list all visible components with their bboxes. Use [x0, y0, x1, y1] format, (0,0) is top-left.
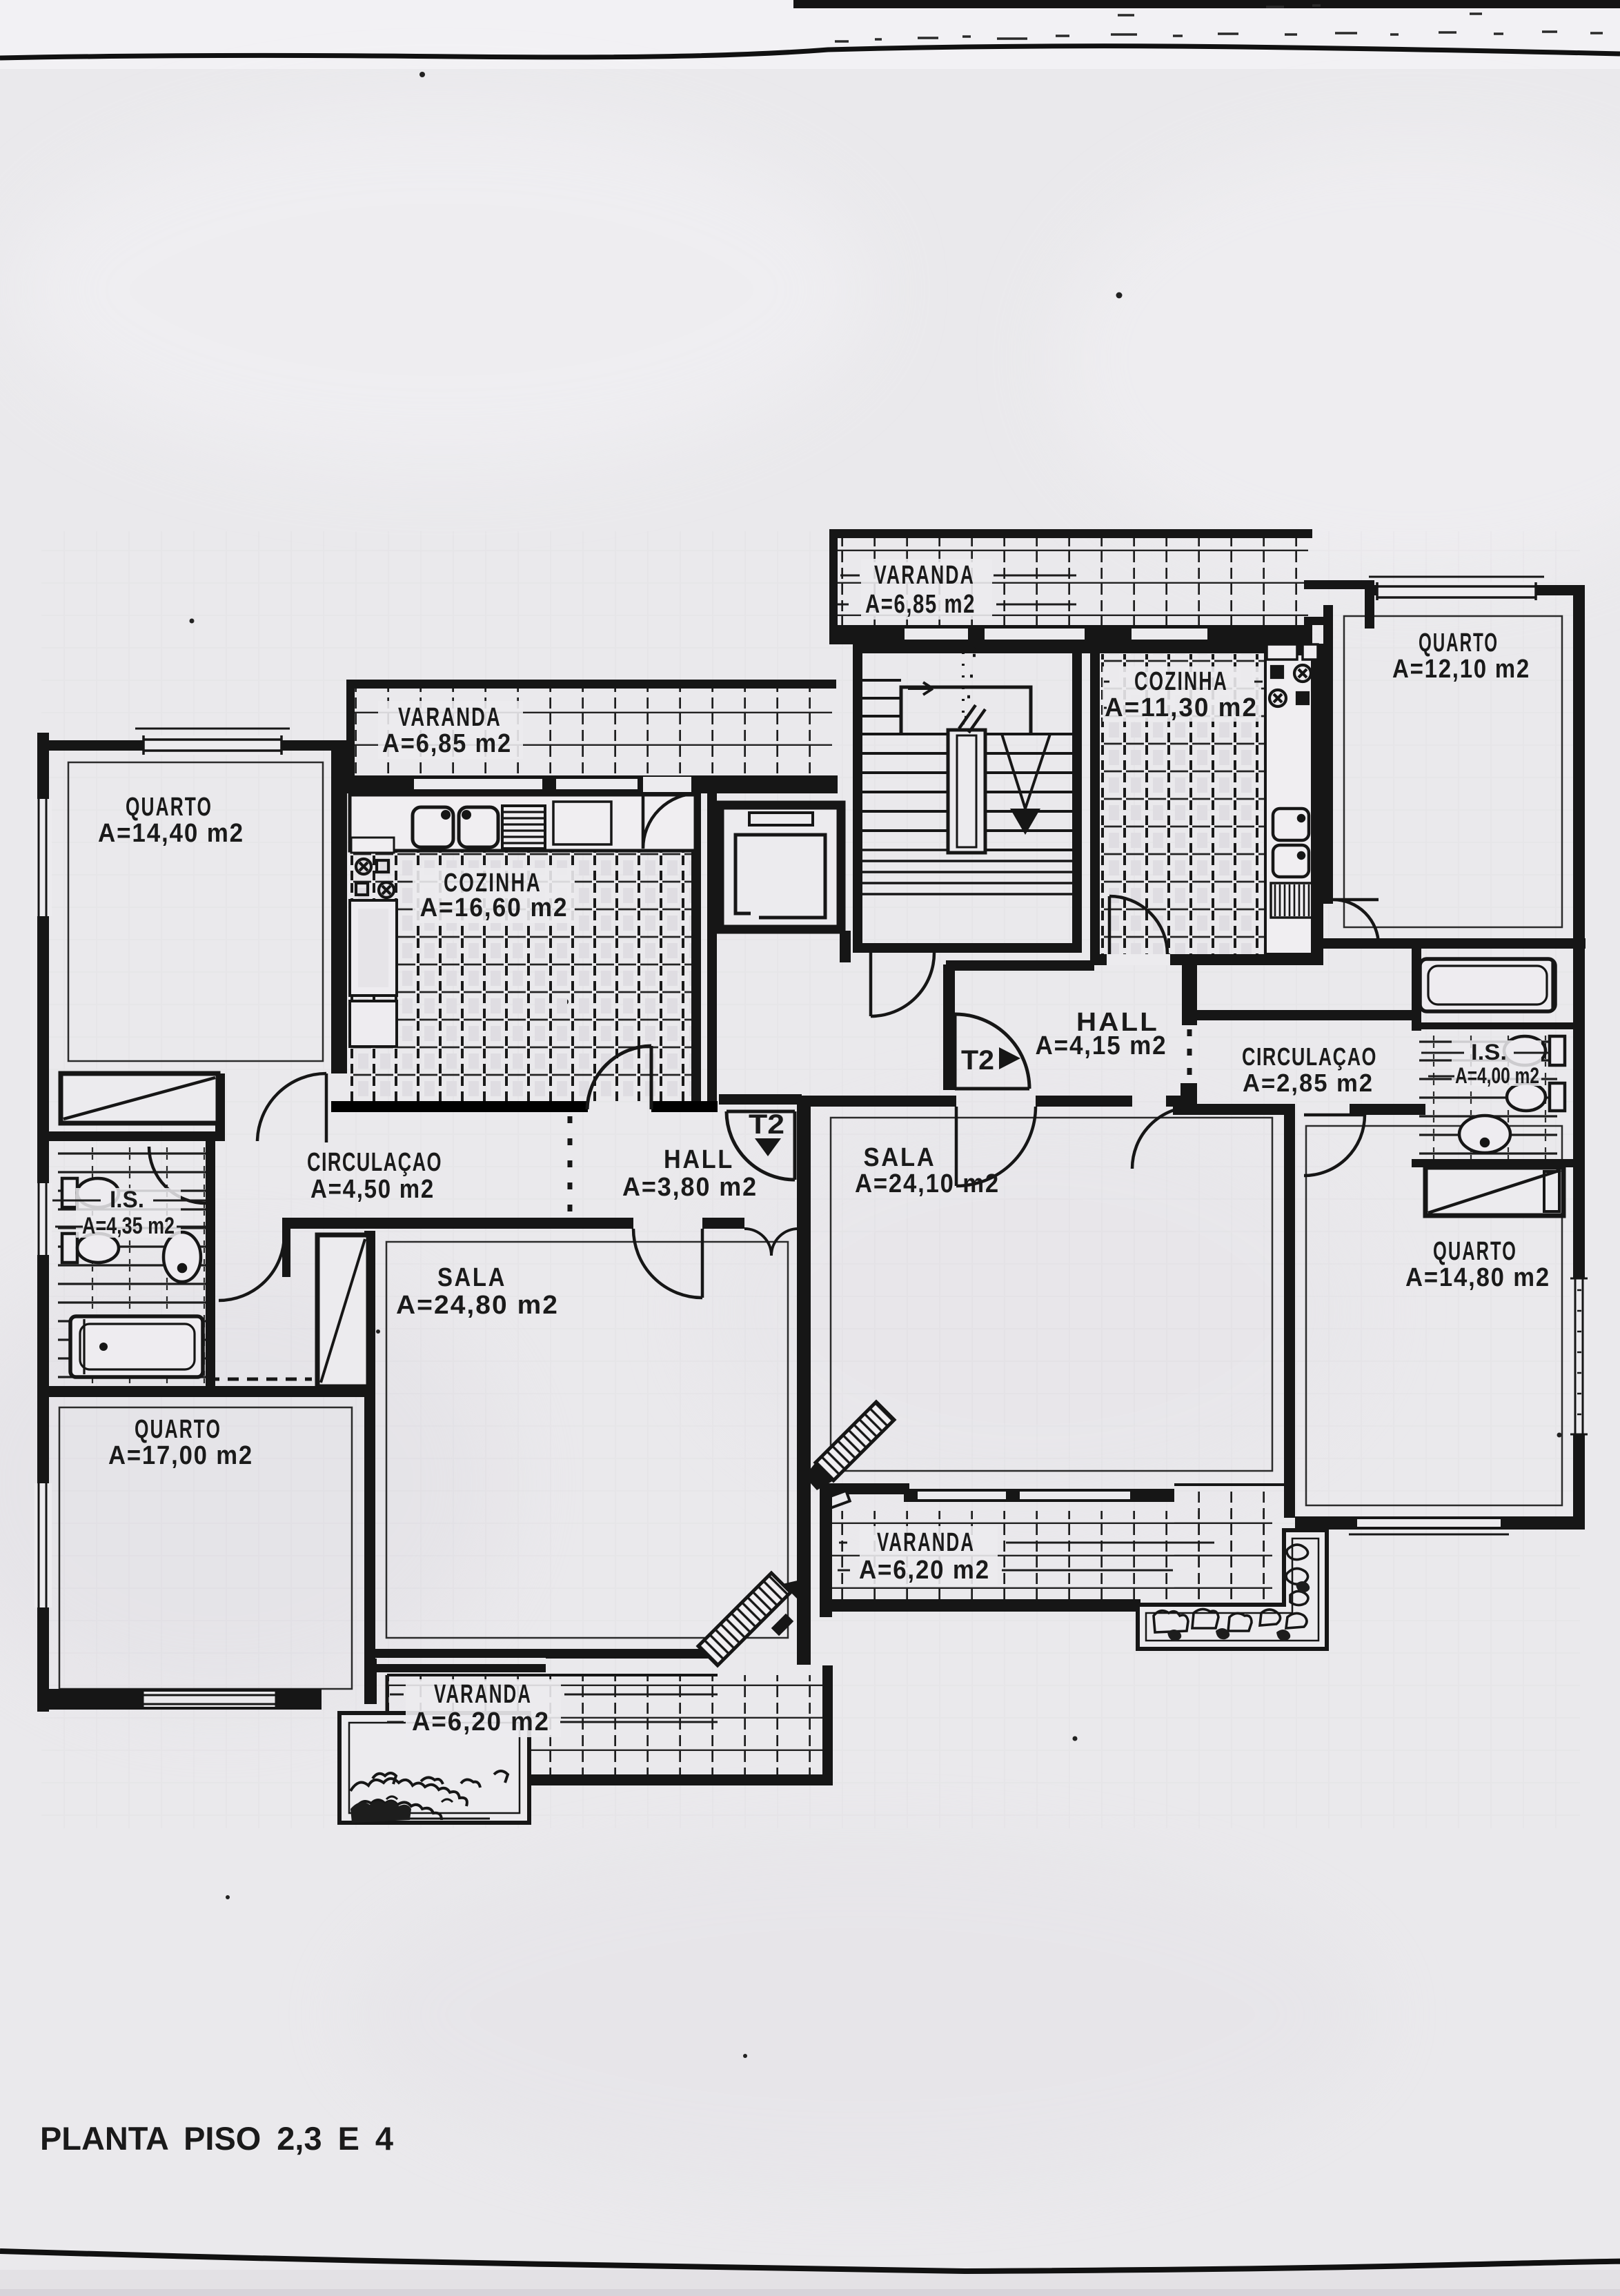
svg-text:A=17,00 m2: A=17,00 m2	[108, 1441, 253, 1470]
svg-text:VARANDA: VARANDA	[434, 1680, 532, 1709]
svg-text:A=24,10 m2: A=24,10 m2	[855, 1169, 1000, 1198]
svg-text:A=4,00 m2: A=4,00 m2	[1455, 1063, 1539, 1088]
svg-text:VARANDA: VARANDA	[877, 1528, 975, 1557]
svg-text:VARANDA: VARANDA	[874, 561, 975, 590]
svg-text:I.S.: I.S.	[1471, 1040, 1507, 1065]
svg-text:QUARTO: QUARTO	[135, 1415, 221, 1444]
svg-text:CIRCULAÇAO: CIRCULAÇAO	[1242, 1042, 1377, 1071]
svg-text:A=4,50 m2: A=4,50 m2	[310, 1175, 435, 1204]
svg-text:A=2,85 m2: A=2,85 m2	[1243, 1069, 1374, 1097]
svg-text:PLANTA PISO 2,3 E 4: PLANTA PISO 2,3 E 4	[40, 2120, 393, 2157]
svg-text:A=11,30 m2: A=11,30 m2	[1105, 693, 1258, 722]
svg-text:A=14,40 m2: A=14,40 m2	[98, 819, 244, 848]
svg-text:A=3,80 m2: A=3,80 m2	[622, 1173, 758, 1202]
svg-text:A=4,35 m2: A=4,35 m2	[82, 1213, 175, 1239]
svg-text:QUARTO: QUARTO	[1419, 629, 1499, 657]
svg-text:A=6,85 m2: A=6,85 m2	[382, 729, 512, 758]
svg-text:A=14,80 m2: A=14,80 m2	[1405, 1263, 1550, 1292]
svg-text:A=16,60 m2: A=16,60 m2	[420, 893, 569, 922]
svg-text:QUARTO: QUARTO	[126, 793, 213, 822]
svg-text:HALL: HALL	[664, 1145, 734, 1174]
svg-text:A=12,10 m2: A=12,10 m2	[1392, 655, 1530, 684]
svg-text:A=6,20 m2: A=6,20 m2	[859, 1556, 990, 1585]
svg-text:A=6,85 m2: A=6,85 m2	[865, 590, 976, 619]
svg-text:T2: T2	[749, 1109, 784, 1140]
svg-text:SALA: SALA	[437, 1263, 506, 1292]
svg-text:I.S.: I.S.	[110, 1187, 144, 1213]
svg-text:QUARTO: QUARTO	[1433, 1237, 1517, 1266]
svg-text:COZINHA: COZINHA	[1134, 667, 1228, 696]
svg-text:A=6,20 m2: A=6,20 m2	[412, 1708, 550, 1736]
svg-text:CIRCULAÇAO: CIRCULAÇAO	[307, 1148, 442, 1177]
svg-text:A=24,80 m2: A=24,80 m2	[396, 1291, 559, 1320]
svg-text:T2: T2	[961, 1045, 994, 1076]
svg-text:VARANDA: VARANDA	[398, 703, 502, 732]
svg-text:SALA: SALA	[864, 1143, 936, 1172]
svg-text:A=4,15 m2: A=4,15 m2	[1036, 1031, 1167, 1060]
